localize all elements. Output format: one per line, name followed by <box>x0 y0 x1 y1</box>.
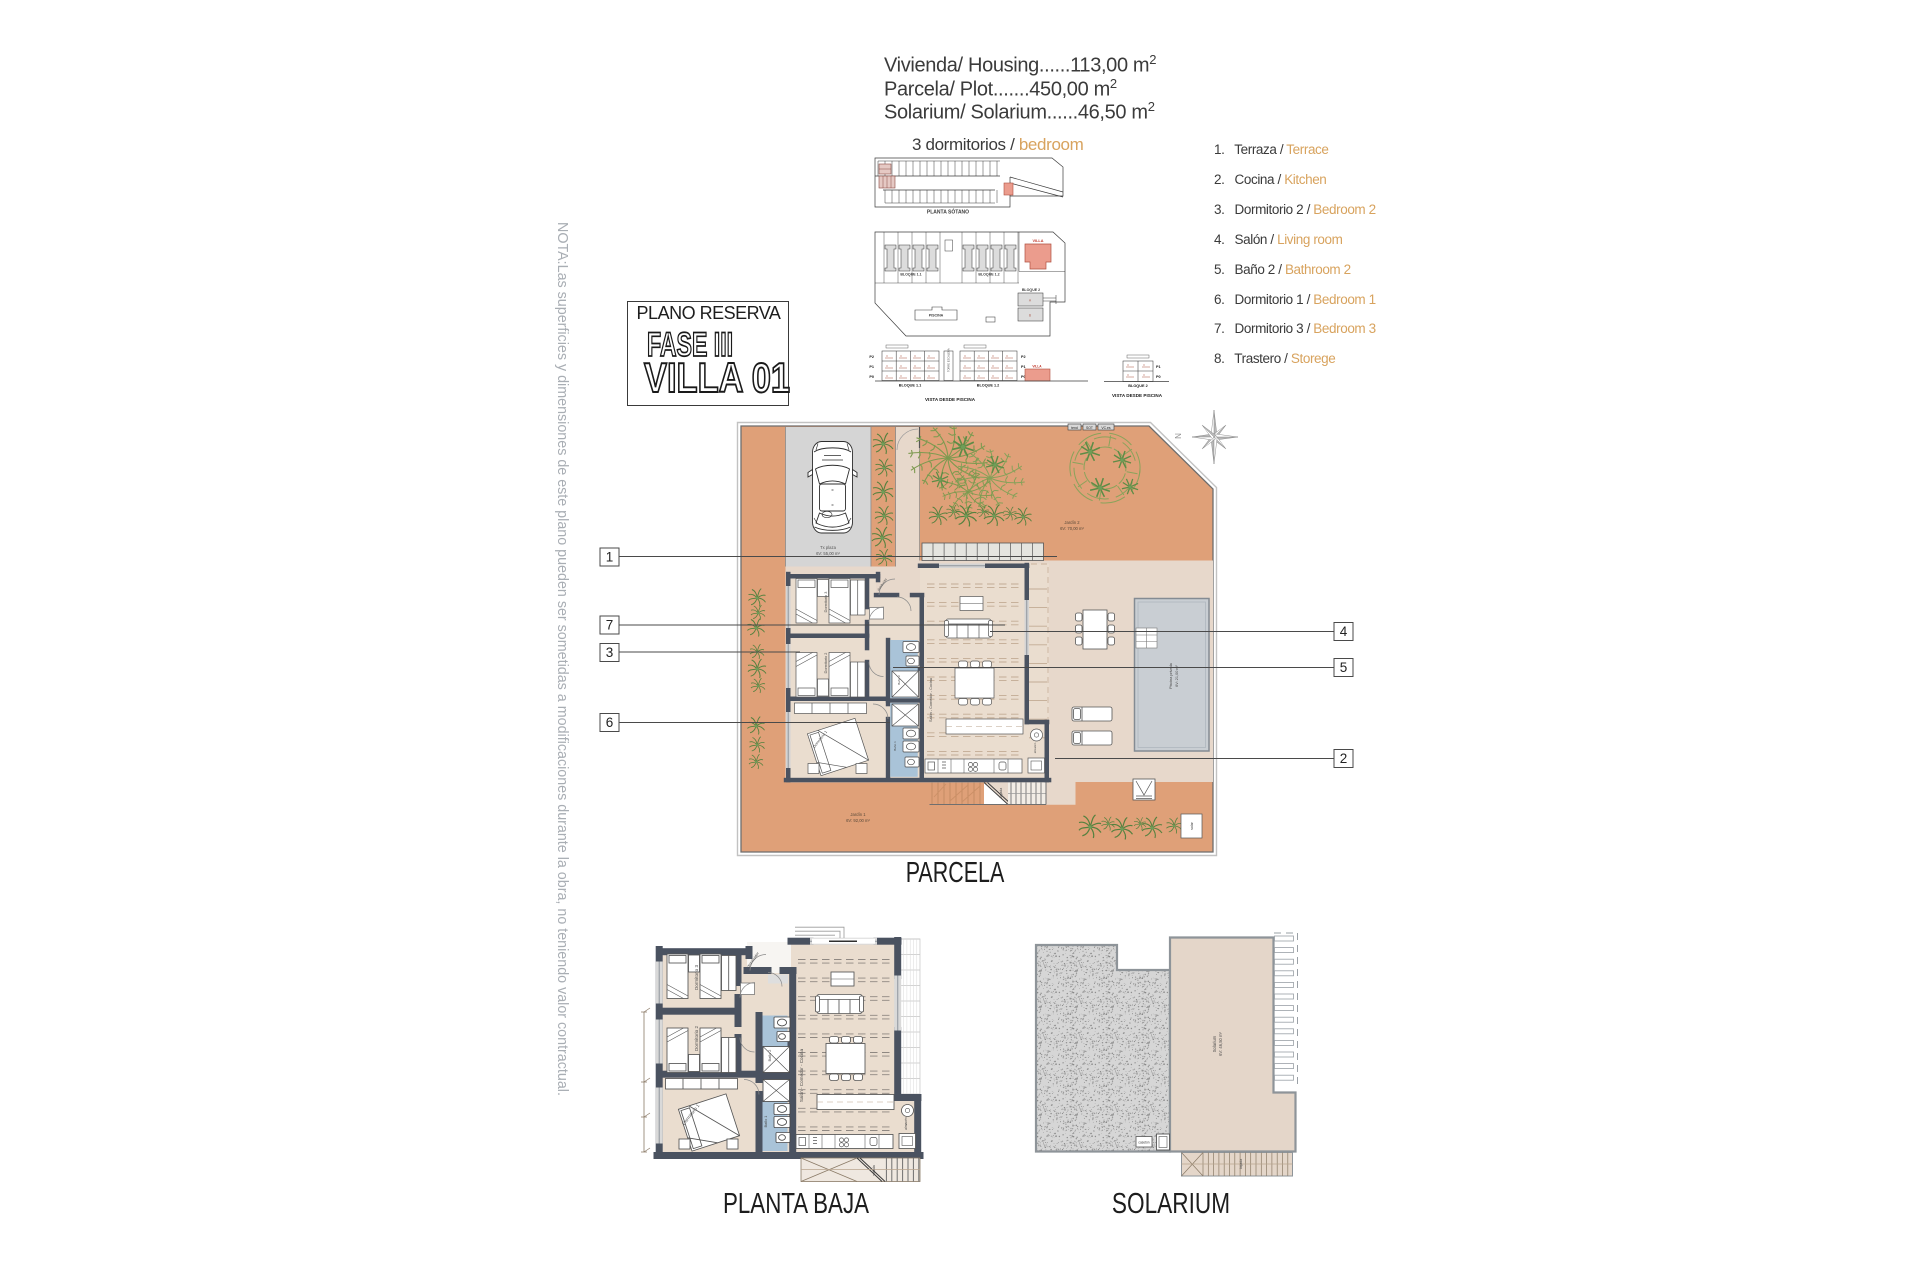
svg-text:N: N <box>1174 433 1183 439</box>
svg-text:6: 6 <box>606 715 614 730</box>
svg-text:Salón - Comedor - Cocina: Salón - Comedor - Cocina <box>799 1049 804 1103</box>
svg-text:VC.es: VC.es <box>1101 426 1111 430</box>
svg-text:casetón: casetón <box>1138 1141 1149 1145</box>
svg-text:6V: 70,00 m²: 6V: 70,00 m² <box>1060 526 1084 531</box>
svg-text:6V: 92,00 m²: 6V: 92,00 m² <box>846 818 870 823</box>
svg-text:bajada: bajada <box>1239 1159 1243 1169</box>
svg-text:subida: subida <box>872 1165 876 1176</box>
svg-text:solar: solar <box>1190 821 1194 830</box>
svg-text:P0: P0 <box>1156 375 1161 379</box>
svg-text:Baño 2: Baño 2 <box>897 675 901 685</box>
svg-text:P0: P0 <box>869 375 874 379</box>
svg-text:VILLA: VILLA <box>1033 239 1044 243</box>
svg-text:Tx plaza: Tx plaza <box>820 545 836 550</box>
svg-text:P2: P2 <box>869 355 874 359</box>
svg-text:TORRE ESCALERA: TORRE ESCALERA <box>947 348 951 372</box>
svg-text:7: 7 <box>606 618 614 633</box>
svg-text:Salón - Comedor - Cocina: Salón - Comedor - Cocina <box>929 677 933 722</box>
svg-text:PLANTA SÓTANO: PLANTA SÓTANO <box>927 208 969 216</box>
svg-text:Dormitorio 3: Dormitorio 3 <box>694 965 699 990</box>
svg-text:6V: 46,50 m²: 6V: 46,50 m² <box>1218 1031 1223 1055</box>
svg-text:2: 2 <box>1340 751 1348 766</box>
svg-text:P1: P1 <box>869 365 874 369</box>
svg-text:almacén: almacén <box>1033 742 1037 753</box>
svg-text:BLOQUE 1.2: BLOQUE 1.2 <box>978 273 999 277</box>
svg-text:PISCINA: PISCINA <box>929 314 944 318</box>
svg-text:tend: tend <box>1071 426 1078 430</box>
svg-text:5: 5 <box>1340 660 1348 675</box>
svg-text:BLOQUE 2: BLOQUE 2 <box>1128 384 1147 388</box>
svg-text:Dormitorio 2: Dormitorio 2 <box>824 653 828 674</box>
svg-text:Jardín 2: Jardín 2 <box>1064 520 1080 525</box>
svg-text:Jardín 1: Jardín 1 <box>850 812 866 817</box>
svg-text:SOT: SOT <box>1086 426 1093 430</box>
svg-text:Baño 1: Baño 1 <box>893 741 897 751</box>
svg-text:VISTA DESDE PISCINA: VISTA DESDE PISCINA <box>925 397 976 402</box>
svg-text:P2: P2 <box>1021 355 1026 359</box>
svg-text:Piscina privada: Piscina privada <box>1169 662 1173 689</box>
svg-text:Dormitorio 2: Dormitorio 2 <box>694 1026 699 1051</box>
svg-text:P1: P1 <box>1021 365 1026 369</box>
svg-text:1: 1 <box>606 550 614 565</box>
svg-text:VILLA: VILLA <box>1032 365 1042 369</box>
svg-text:bajada: bajada <box>999 788 1003 798</box>
svg-text:P1: P1 <box>1156 365 1161 369</box>
svg-text:BLOQUE 2: BLOQUE 2 <box>1022 288 1040 292</box>
svg-text:3: 3 <box>606 645 614 660</box>
svg-text:Baño 2: Baño 2 <box>768 1050 772 1062</box>
svg-text:BLOQUE 1.1: BLOQUE 1.1 <box>900 273 921 277</box>
svg-text:BLOQUE 1.2: BLOQUE 1.2 <box>977 384 1000 388</box>
svg-text:6V: 55,00 m²: 6V: 55,00 m² <box>816 551 840 556</box>
svg-text:BLOQUE 1.1: BLOQUE 1.1 <box>899 384 922 388</box>
svg-text:Solarium: Solarium <box>1212 1035 1217 1052</box>
svg-text:4: 4 <box>1340 624 1348 639</box>
svg-text:VISTA DESDE PISCINA: VISTA DESDE PISCINA <box>1112 393 1163 398</box>
svg-text:Baño 1: Baño 1 <box>764 1116 768 1128</box>
svg-text:almacén: almacén <box>904 1117 908 1130</box>
svg-text:Dormitorio 3: Dormitorio 3 <box>824 592 828 613</box>
